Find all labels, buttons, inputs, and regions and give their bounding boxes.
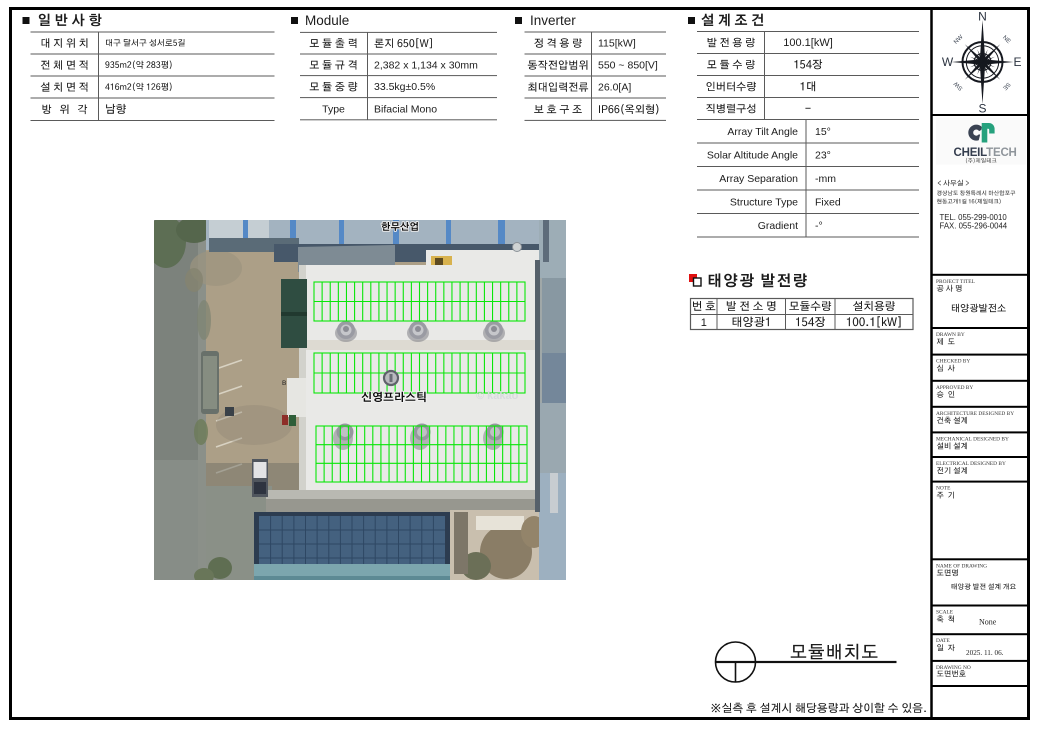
svg-text:2025. 11. 06.: 2025. 11. 06.: [966, 649, 1004, 657]
svg-text:100.1[kW]: 100.1[kW]: [783, 37, 833, 49]
svg-text:115[kW]: 115[kW]: [598, 38, 636, 50]
svg-text:CHEILTECH: CHEILTECH: [954, 147, 1017, 159]
svg-text:PROJECT TITEL: PROJECT TITEL: [936, 279, 975, 285]
svg-text:W: W: [942, 55, 954, 69]
svg-text:Module: Module: [305, 13, 349, 28]
svg-text:550 ~ 850[V]: 550 ~ 850[V]: [598, 60, 658, 72]
svg-text:© kakao: © kakao: [476, 390, 519, 402]
svg-text:Type: Type: [322, 103, 345, 115]
svg-text:2,382 x 1,134 x 30mm: 2,382 x 1,134 x 30mm: [374, 59, 478, 71]
svg-text:-°: -°: [815, 220, 823, 232]
svg-text:DRAWING NO: DRAWING NO: [936, 665, 971, 671]
svg-text:None: None: [979, 618, 997, 627]
svg-text:33.5kg±0.5%: 33.5kg±0.5%: [374, 81, 435, 93]
svg-text:Structure Type: Structure Type: [730, 196, 798, 208]
svg-text:Gradient: Gradient: [758, 220, 798, 232]
svg-text:Solar Altitude Angle: Solar Altitude Angle: [707, 149, 798, 161]
svg-text:B: B: [282, 380, 286, 387]
svg-text:ELECTRICAL DESIGNED BY: ELECTRICAL DESIGNED BY: [936, 461, 1006, 467]
svg-text:DRAWN BY: DRAWN BY: [936, 332, 965, 338]
svg-text:SCALE: SCALE: [936, 610, 954, 616]
svg-text:23°: 23°: [815, 149, 831, 161]
svg-text:NOTE: NOTE: [936, 486, 951, 492]
svg-text:NAME OF DRAWING: NAME OF DRAWING: [936, 563, 987, 569]
svg-text:Array Tilt Angle: Array Tilt Angle: [727, 126, 798, 138]
svg-text:Inverter: Inverter: [530, 13, 576, 28]
svg-text:APPROVED BY: APPROVED BY: [936, 385, 973, 391]
svg-text:FAX. 055-296-0044: FAX. 055-296-0044: [940, 222, 1008, 231]
svg-text:CHECKED BY: CHECKED BY: [936, 359, 970, 365]
svg-text:15°: 15°: [815, 126, 831, 138]
svg-text:26.0[A]: 26.0[A]: [598, 82, 631, 94]
svg-text:E: E: [1013, 55, 1021, 69]
svg-text:Array Separation: Array Separation: [719, 173, 798, 185]
svg-text:N: N: [978, 10, 987, 24]
svg-text:Bifacial Mono: Bifacial Mono: [374, 103, 437, 115]
svg-text:MECHANICAL DESIGNED BY: MECHANICAL DESIGNED BY: [936, 436, 1009, 442]
svg-text:ARCHITECTURE DESIGNED BY: ARCHITECTURE DESIGNED BY: [936, 411, 1014, 417]
svg-text:-mm: -mm: [815, 173, 836, 185]
svg-text:S: S: [978, 102, 986, 116]
svg-text:1: 1: [701, 317, 707, 329]
svg-text:DATE: DATE: [936, 638, 950, 644]
svg-text:Fixed: Fixed: [815, 196, 841, 208]
